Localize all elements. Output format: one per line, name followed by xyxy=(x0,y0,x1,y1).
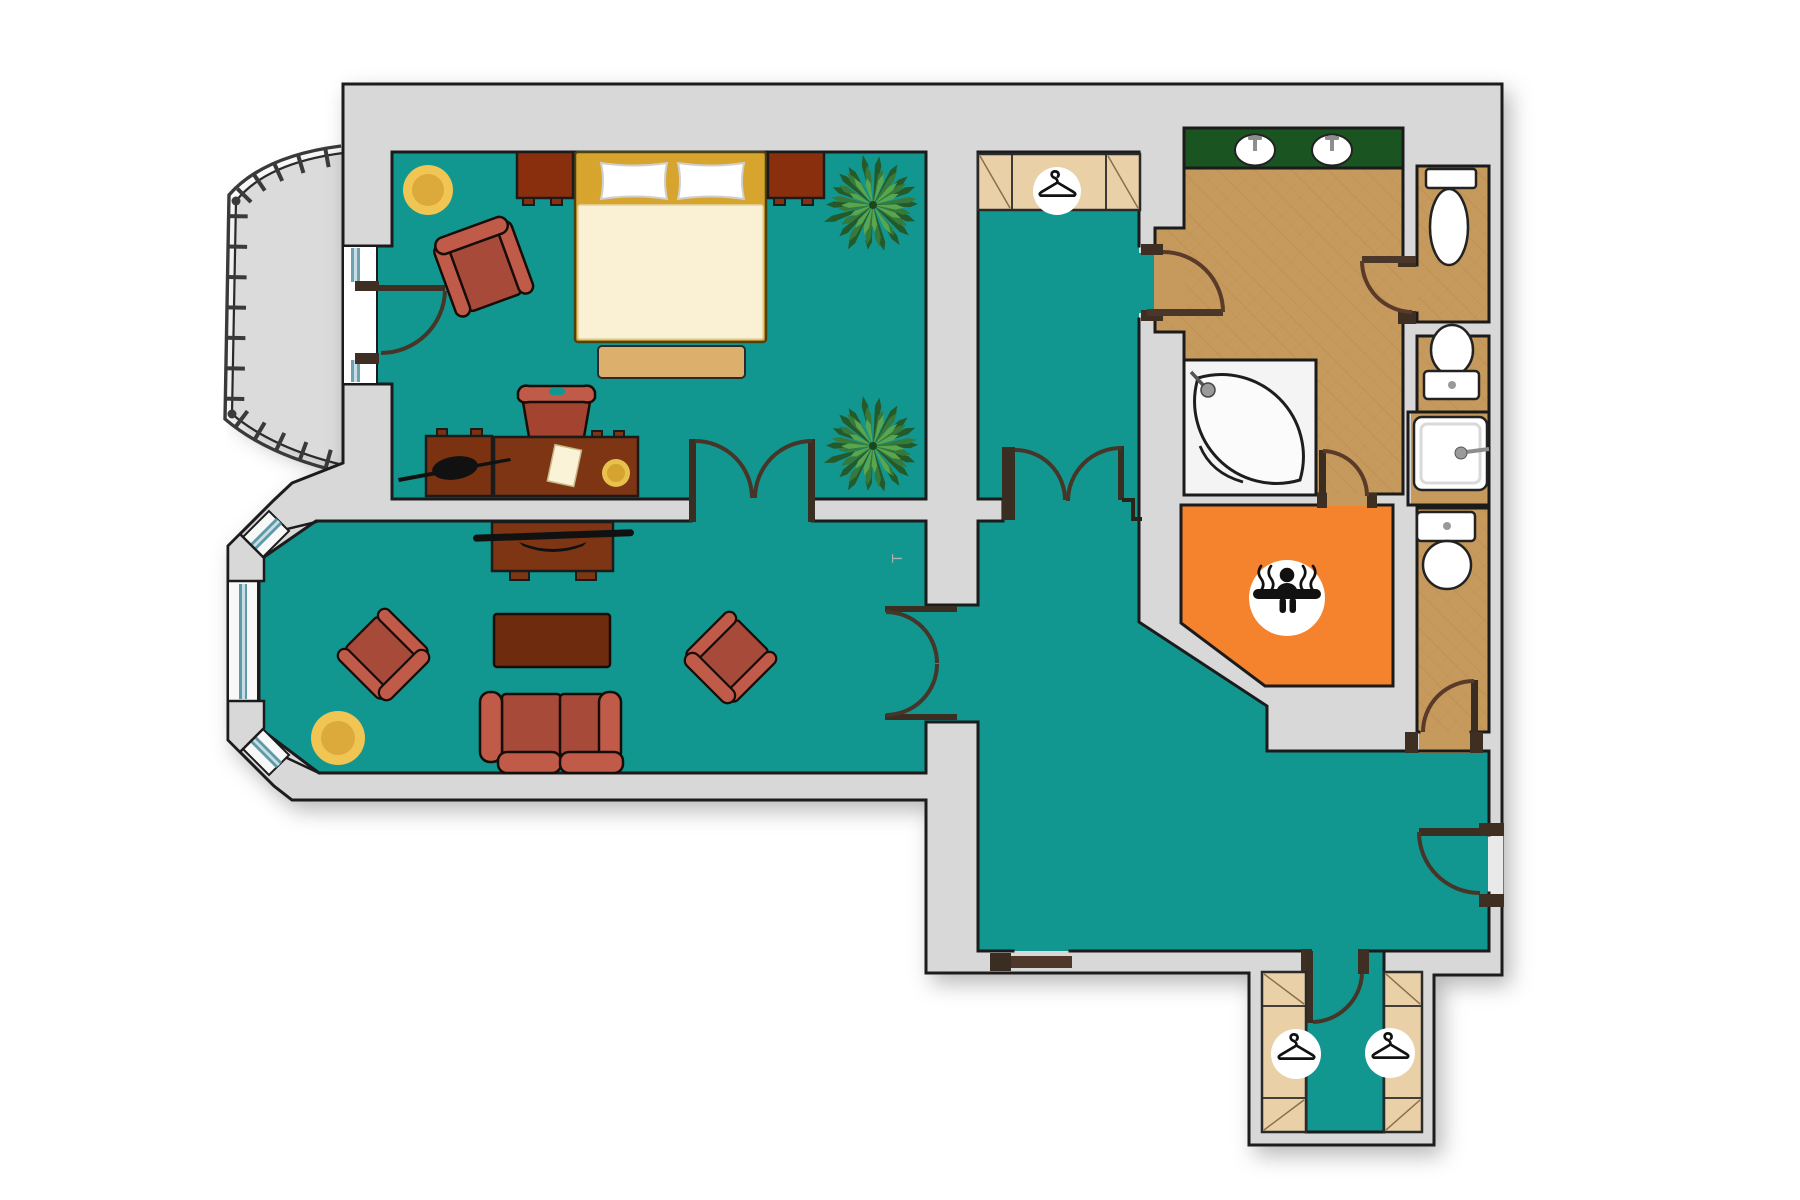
svg-text:T: T xyxy=(889,554,906,563)
